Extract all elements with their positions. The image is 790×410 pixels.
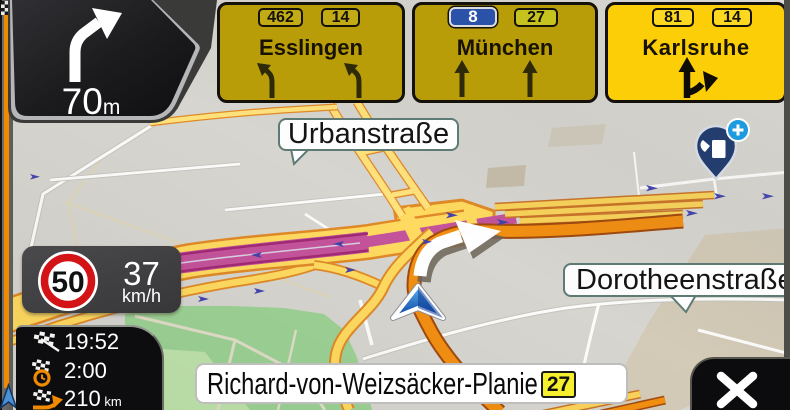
svg-text:50: 50	[51, 266, 84, 299]
